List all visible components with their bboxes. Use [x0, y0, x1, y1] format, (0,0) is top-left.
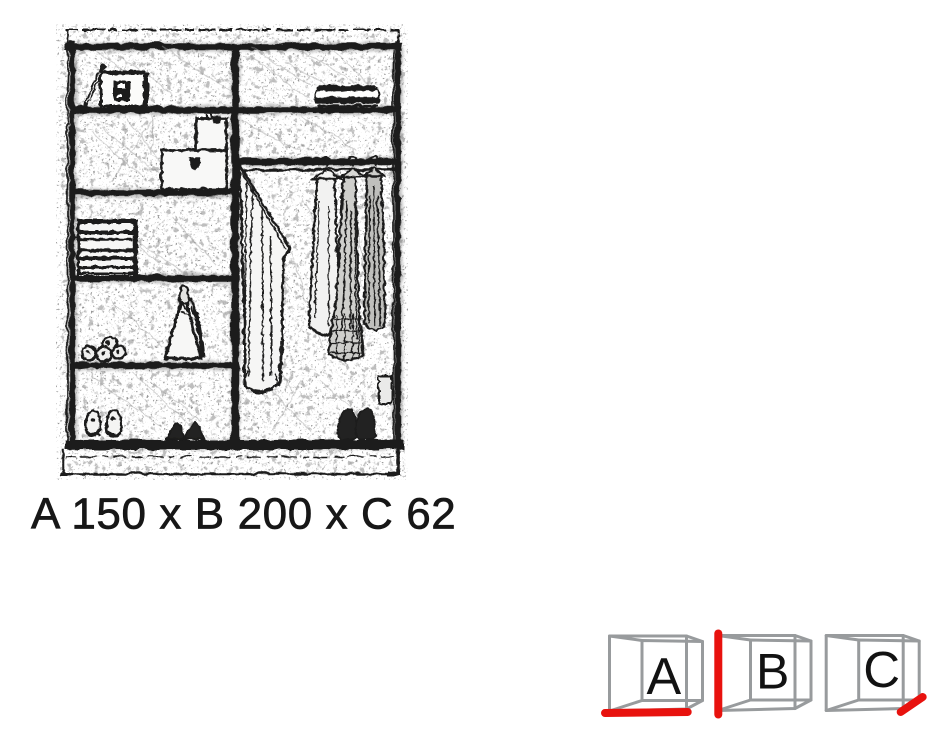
svg-text:A 150 x B 200 x C 62: A 150 x B 200 x C 62 — [31, 490, 456, 539]
svg-text:C: C — [863, 641, 900, 698]
svg-text:A: A — [647, 648, 682, 706]
svg-text:B: B — [756, 644, 789, 700]
